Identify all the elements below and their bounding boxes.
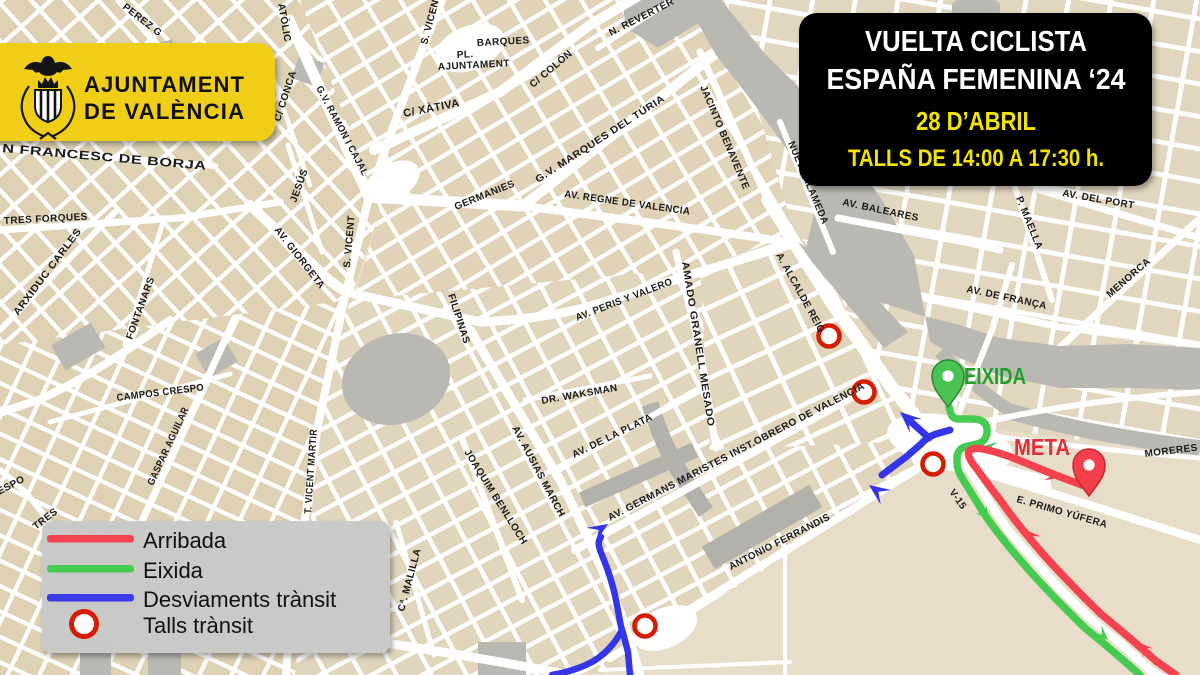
svg-text:EIXIDA: EIXIDA — [964, 363, 1026, 389]
svg-text:Talls trànsit: Talls trànsit — [143, 613, 253, 638]
svg-text:META: META — [1014, 434, 1070, 460]
svg-text:PL.: PL. — [457, 49, 474, 61]
svg-text:TALLS DE 14:00 A 17:30 h.: TALLS DE 14:00 A 17:30 h. — [848, 145, 1104, 172]
svg-text:Arribada: Arribada — [143, 528, 227, 553]
svg-text:Desviaments trànsit: Desviaments trànsit — [143, 587, 336, 612]
svg-text:AJUNTAMENT: AJUNTAMENT — [84, 72, 245, 97]
svg-text:Eixida: Eixida — [143, 558, 204, 583]
svg-text:VUELTA CICLISTA: VUELTA CICLISTA — [865, 26, 1087, 58]
svg-text:28 D’ABRIL: 28 D’ABRIL — [916, 106, 1036, 136]
svg-text:DE VALÈNCIA: DE VALÈNCIA — [84, 99, 244, 124]
svg-text:ESPAÑA FEMENINA ‘24: ESPAÑA FEMENINA ‘24 — [827, 62, 1126, 96]
